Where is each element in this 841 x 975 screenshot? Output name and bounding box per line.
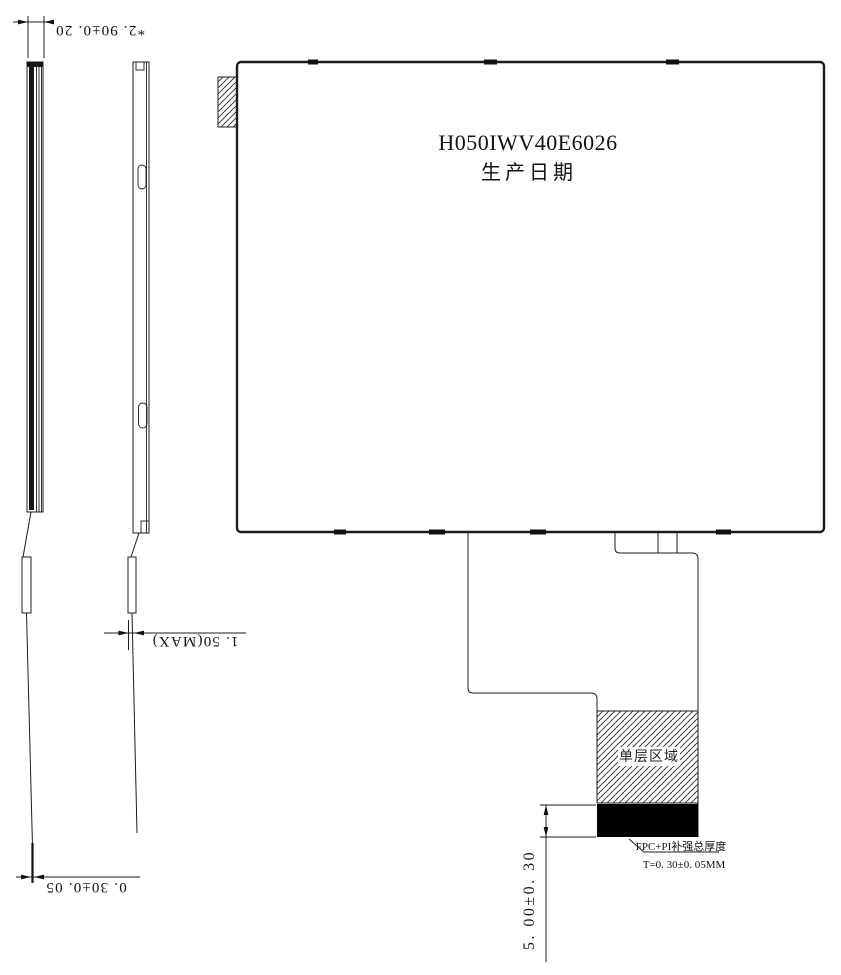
bottom-notch — [141, 521, 149, 533]
right-edge-view — [128, 62, 149, 833]
left-view-fpc-bend — [23, 512, 31, 557]
stiffener-note-line1: FPC+PI补强总厚度 — [636, 839, 727, 853]
dim-fpc-tail-length-label: 5. 00±0. 30 — [521, 850, 538, 950]
side-connector-hatch — [218, 77, 237, 127]
dim-fpc-fold-max: 1. 50(MAX) — [104, 620, 246, 650]
main-back-view: H050IWV40E6026 生产日期 — [218, 62, 824, 532]
left-edge-view — [22, 62, 43, 866]
drawing-canvas: *2. 90±0. 20 0. 30±0. 05 — [0, 0, 841, 975]
left-view-fpc-stiffener — [22, 557, 31, 613]
left-view-fpc-tail — [27, 613, 34, 866]
dim-module-thickness-label: *2. 90±0. 20 — [55, 22, 145, 38]
production-date-label: 生产日期 — [481, 161, 577, 184]
dim-fpc-thickness-label: 0. 30±0. 05 — [45, 879, 126, 895]
fpc-left-outline — [468, 532, 597, 711]
slot-lower — [139, 403, 148, 428]
right-view-fpc-bend — [131, 533, 139, 557]
stiffener-note-line2: T=0. 30±0. 05MM — [643, 859, 726, 871]
single-layer-region-label: 单层区域 — [619, 749, 679, 765]
slot-upper — [138, 165, 146, 189]
dim-fpc-thickness: 0. 30±0. 05 — [16, 843, 140, 895]
fpc-stiffener-black-region — [597, 804, 698, 837]
right-view-fpc-tail — [132, 613, 137, 833]
top-notch — [136, 62, 144, 70]
dim-module-thickness: *2. 90±0. 20 — [13, 16, 145, 58]
part-number: H050IWV40E6026 — [438, 130, 617, 155]
fpc-tail: 单层区域 — [468, 532, 698, 837]
dim-fpc-tail-length: 5. 00±0. 30 — [521, 805, 596, 962]
right-view-fpc-stiffener — [128, 557, 136, 613]
mechanical-drawing-sheet: *2. 90±0. 20 0. 30±0. 05 — [0, 0, 841, 975]
dim-fpc-fold-max-label: 1. 50(MAX) — [152, 633, 239, 649]
stiffener-leader-note: FPC+PI补强总厚度 T=0. 30±0. 05MM — [629, 839, 726, 871]
